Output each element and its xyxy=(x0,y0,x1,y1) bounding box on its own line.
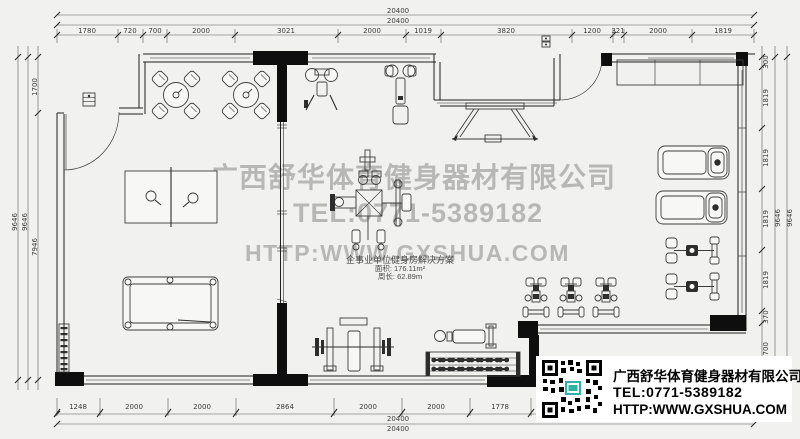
dim-right-seg: 1819 xyxy=(762,199,770,239)
top-door-arc xyxy=(560,58,602,100)
left-room-furniture xyxy=(59,36,550,372)
dim-bottom-seg: 2864 xyxy=(265,403,305,411)
treadmill xyxy=(656,191,727,224)
dim-left-overall-2: 9646 xyxy=(21,202,29,242)
round-table-with-chairs xyxy=(151,70,201,120)
dim-right-overall-1: 9646 xyxy=(774,198,782,238)
spin-bike xyxy=(593,278,619,317)
dim-top-seg: 2000 xyxy=(181,27,221,35)
dim-right-seg: 300 xyxy=(762,42,770,82)
dim-bottom-seg: 1778 xyxy=(480,403,520,411)
dim-bottom-seg: 2000 xyxy=(182,403,222,411)
dim-bottom-seg: 1248 xyxy=(58,403,98,411)
dim-top-seg: 1819 xyxy=(703,27,743,35)
situp-rack xyxy=(452,103,538,142)
plan-perimeter: 周长: 62.89m xyxy=(310,273,490,281)
dim-top-seg: 3021 xyxy=(266,27,306,35)
dim-top-seg: 2000 xyxy=(638,27,678,35)
reception-counter xyxy=(617,60,743,85)
rowing-machine xyxy=(666,237,719,264)
rowing-machine xyxy=(666,273,719,300)
dim-top-overall-1: 20400 xyxy=(378,7,418,15)
dim-bottom-seg: 2000 xyxy=(348,403,388,411)
pec-deck-machine xyxy=(304,69,338,111)
dim-bottom-seg: 2000 xyxy=(416,403,456,411)
dim-left-overall-1: 9646 xyxy=(11,202,19,242)
floor-plan-page: 广西舒华体育健身器材有限公司 TEL:0771-5389182 HTTP:WWW… xyxy=(0,0,800,439)
dim-right-seg: 1819 xyxy=(762,78,770,118)
flat-bench xyxy=(435,324,497,348)
ping-pong-table xyxy=(125,167,217,227)
dim-right-seg: 1819 xyxy=(762,260,770,300)
column-marker xyxy=(542,36,550,47)
info-website: HTTP:WWW.GXSHUA.COM xyxy=(613,402,787,417)
dim-bottom-overall-1: 20400 xyxy=(378,415,418,423)
dim-top-seg: 1780 xyxy=(67,27,107,35)
dumbbell-rack xyxy=(426,352,520,376)
info-company-name: 广西舒华体育健身器材有限公司 xyxy=(613,365,800,385)
round-table-with-chairs xyxy=(221,70,271,120)
dim-top-seg: 3820 xyxy=(486,27,526,35)
dim-top-seg: 2000 xyxy=(352,27,392,35)
dim-left-seg: 1700 xyxy=(31,67,39,107)
dim-bottom-seg: 2000 xyxy=(114,403,154,411)
dim-top-overall-2: 20400 xyxy=(378,17,418,25)
spin-bike xyxy=(558,278,584,317)
treadmill xyxy=(658,146,729,179)
dim-right-seg: 1819 xyxy=(762,138,770,178)
qr-code xyxy=(541,359,607,421)
dim-left-seg: 7946 xyxy=(31,227,39,267)
company-info-box: 广西舒华体育健身器材有限公司 TEL:0771-5389182 HTTP:WWW… xyxy=(536,356,792,422)
dim-top-seg: 1019 xyxy=(403,27,443,35)
plan-annotation: 企事业单位健身房解决方案 面积: 176.11m² 周长: 62.89m xyxy=(310,256,490,281)
spin-bike xyxy=(523,278,549,317)
multi-station-gym xyxy=(330,150,411,250)
info-telephone: TEL:0771-5389182 xyxy=(613,384,742,400)
dim-bottom-overall-2: 20400 xyxy=(378,425,418,433)
entrance-door-arc xyxy=(64,112,119,170)
lat-machine xyxy=(385,65,416,124)
wall-switch xyxy=(83,93,95,106)
dim-top-seg: 700 xyxy=(135,27,175,35)
billiard-table xyxy=(123,277,218,330)
dim-top-seg: 321 xyxy=(598,27,638,35)
bench-press xyxy=(312,318,394,371)
dim-right-overall-2: 9646 xyxy=(786,198,794,238)
